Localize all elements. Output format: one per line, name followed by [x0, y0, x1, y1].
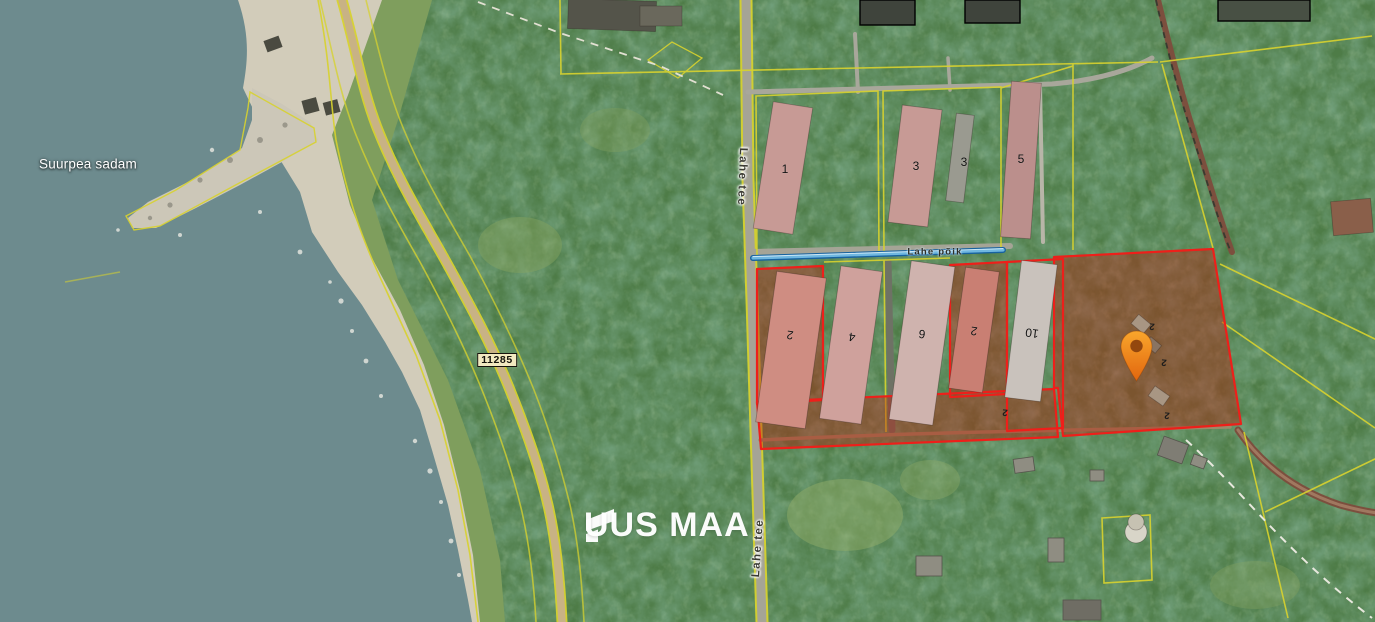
watermark-text: UUS MAA	[584, 506, 750, 545]
road-number-badge: 11285	[477, 353, 517, 367]
satellite-map[interactable]: Suurpea sadam 11285 Lahe tee Lahe tee La…	[0, 0, 1375, 622]
watermark: UUS MAA	[584, 506, 750, 545]
